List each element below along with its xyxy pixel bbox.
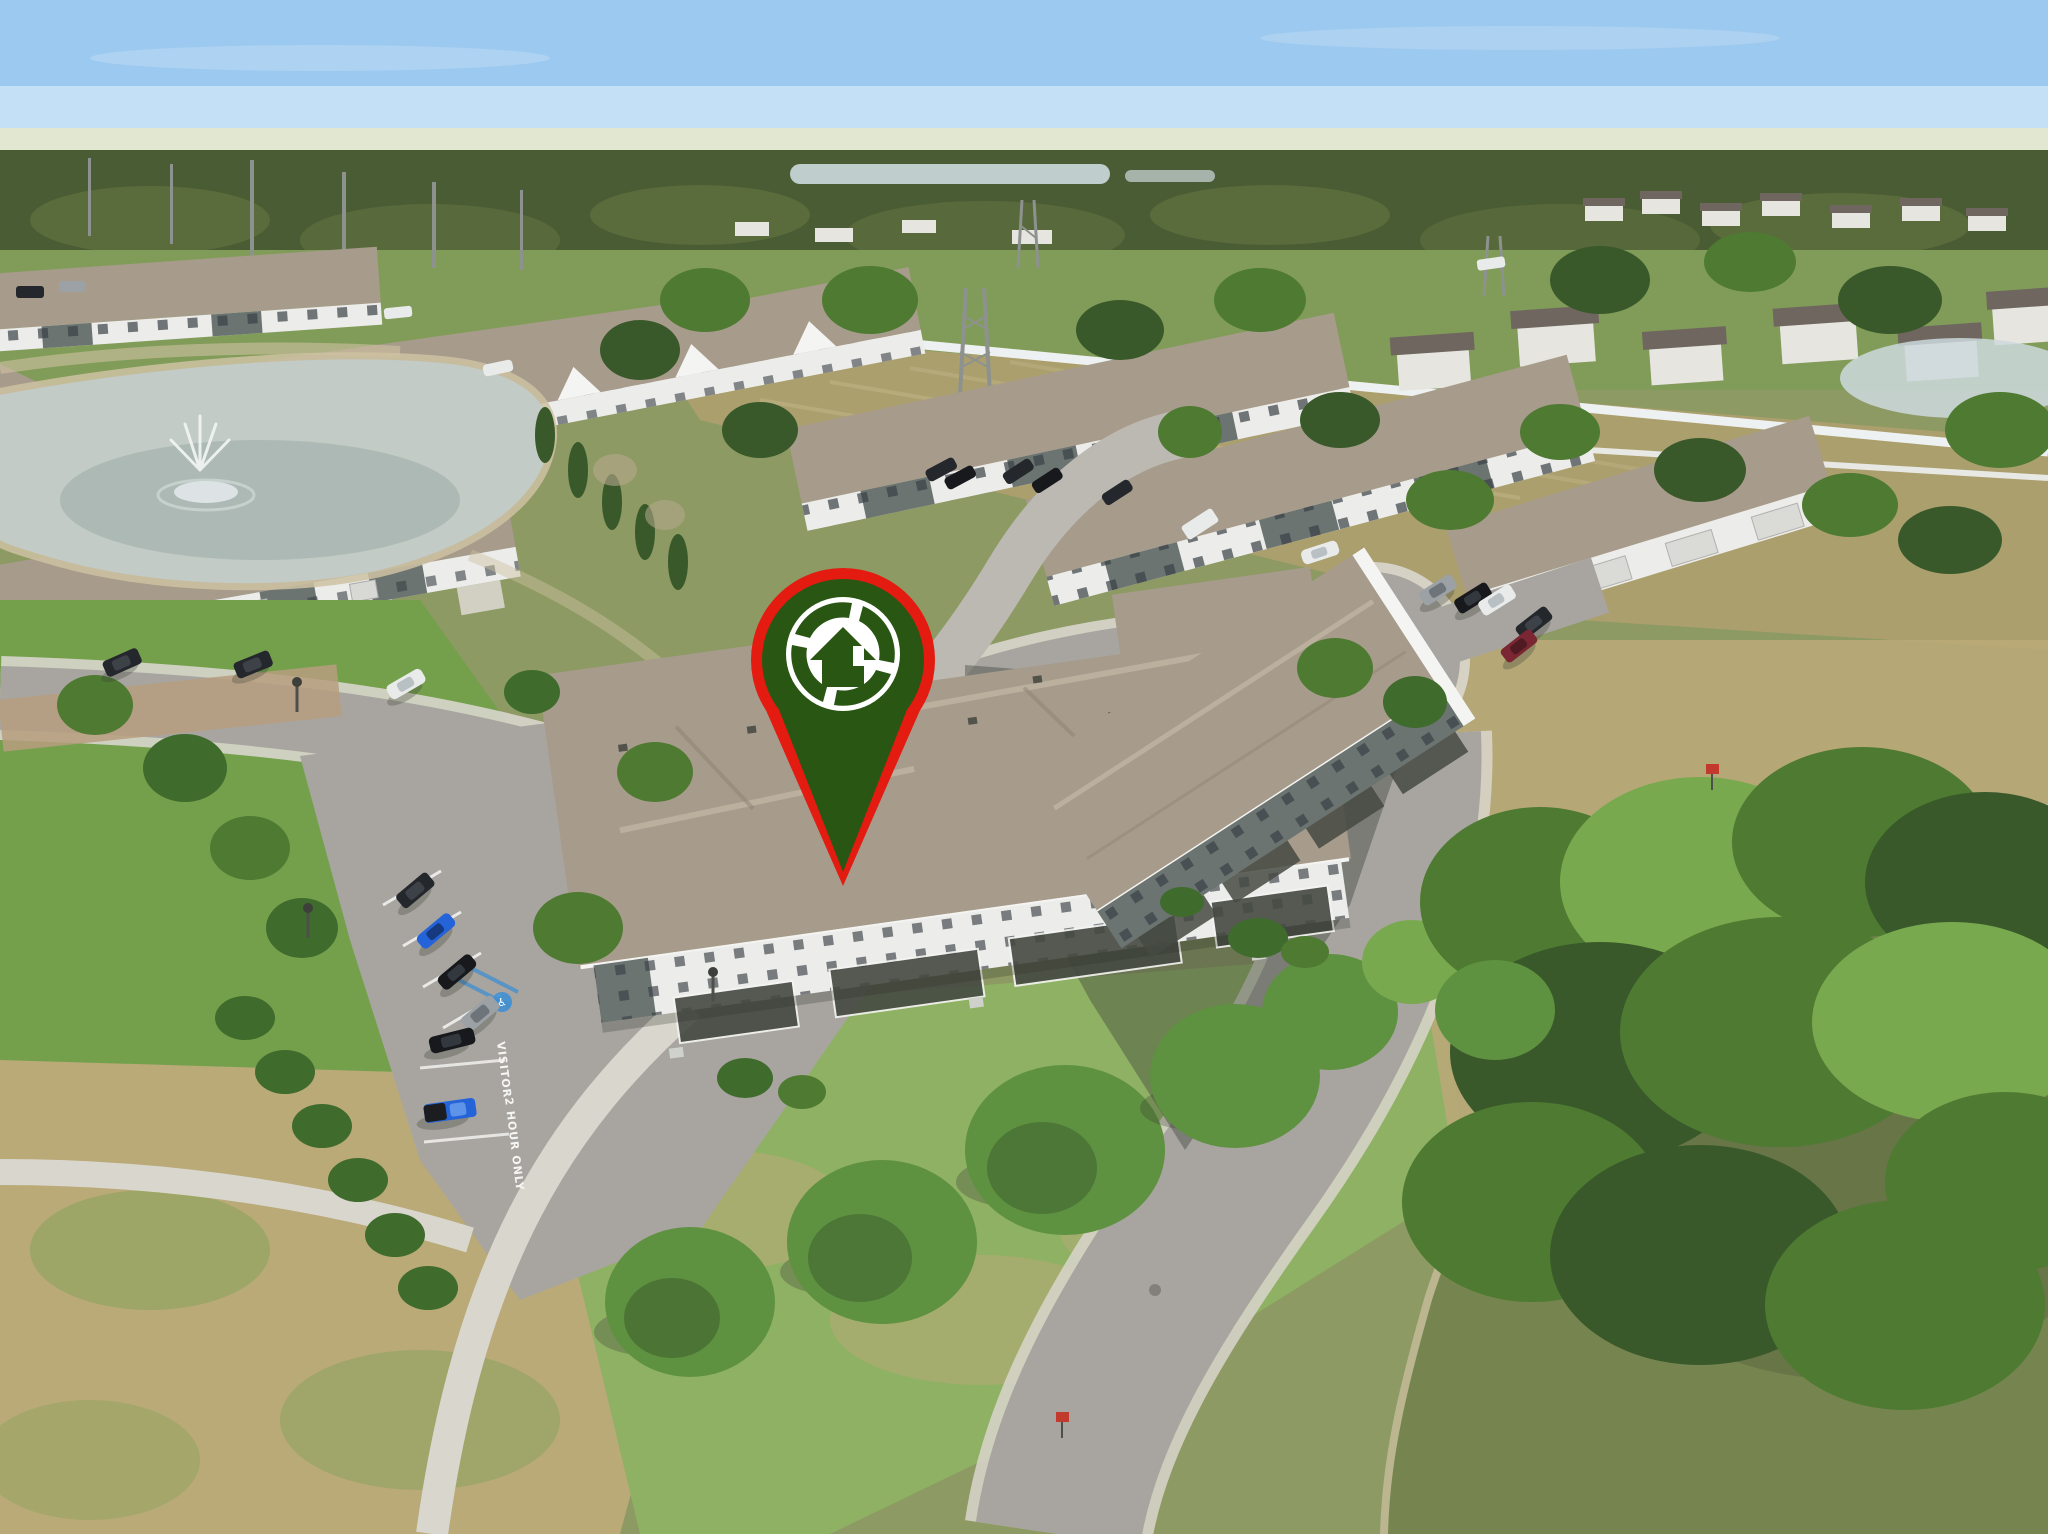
distant-lake: [790, 164, 1110, 184]
fountain-foam: [174, 481, 238, 503]
far-trees: [1150, 185, 1390, 245]
garage-door: [350, 580, 379, 602]
distant-house: [1832, 212, 1870, 228]
distant-roof: [1583, 198, 1625, 206]
utility-pole: [88, 158, 91, 236]
utility-pole: [520, 190, 523, 270]
pond-deep-water: [60, 440, 460, 560]
distant-roof: [1700, 203, 1742, 211]
distant-house: [1702, 210, 1740, 226]
parked-car: [16, 286, 44, 298]
distant-roof: [1760, 193, 1802, 201]
cloud-wisp: [90, 45, 550, 71]
distant-roof: [1900, 198, 1942, 206]
bare-tree: [645, 500, 685, 530]
distant-house: [1642, 198, 1680, 214]
house-notch: [853, 646, 864, 666]
aerial-photo: ♿ VISITOR 2 HOUR ONLY: [0, 0, 2048, 1534]
grass-patch: [30, 1190, 270, 1310]
far-trees: [30, 186, 270, 254]
far-trees: [590, 185, 810, 245]
distant-lake: [1125, 170, 1215, 182]
distant-house: [815, 228, 853, 242]
distant-house: [902, 220, 936, 233]
distant-roof: [1830, 205, 1872, 213]
ac-unit: [669, 1047, 684, 1059]
manhole: [1149, 1284, 1161, 1296]
distant-roof: [1966, 208, 2008, 216]
distant-house: [1012, 230, 1052, 244]
cloud-wisp: [1260, 26, 1780, 50]
distant-house: [1585, 205, 1623, 221]
parked-car: [59, 281, 85, 292]
ac-unit: [969, 997, 984, 1009]
distant-house: [735, 222, 769, 236]
distant-house: [1762, 200, 1800, 216]
aperture-house-logo: [786, 597, 900, 711]
utility-pole: [170, 164, 173, 244]
grass-patch: [280, 1350, 560, 1490]
aerial-photo-stage: ♿ VISITOR 2 HOUR ONLY: [0, 0, 2048, 1534]
bare-tree: [593, 454, 637, 486]
distant-roof: [1640, 191, 1682, 199]
utility-pole: [432, 182, 436, 268]
utility-pole: [250, 160, 254, 255]
distant-house: [1968, 215, 2006, 231]
distant-house: [1902, 205, 1940, 221]
